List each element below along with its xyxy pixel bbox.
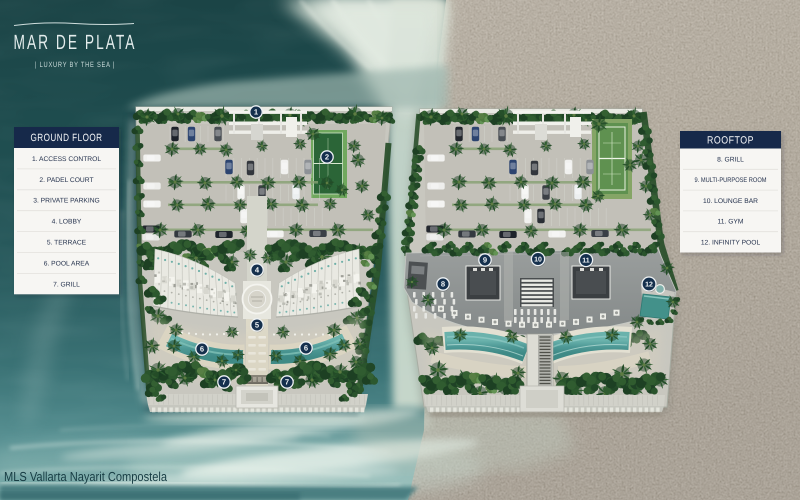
svg-text:1. ACCESS CONTROL: 1. ACCESS CONTROL [32,156,101,163]
svg-text:7: 7 [222,378,226,387]
svg-text:| LUXURY BY THE SEA |: | LUXURY BY THE SEA | [35,60,115,69]
svg-text:MAR DE PLATA: MAR DE PLATA [14,31,137,54]
svg-text:6. POOL AREA: 6. POOL AREA [44,260,90,267]
svg-text:10: 10 [534,257,542,264]
svg-text:7: 7 [285,378,289,387]
svg-text:8: 8 [441,280,445,289]
svg-text:2. PADEL COURT: 2. PADEL COURT [39,177,93,184]
svg-text:7. GRILL: 7. GRILL [53,281,80,288]
svg-text:ROOFTOP: ROOFTOP [707,134,754,146]
svg-text:9: 9 [483,256,487,265]
svg-text:12. INFINITY POOL: 12. INFINITY POOL [701,240,761,247]
svg-text:12: 12 [645,282,653,289]
svg-text:10. LOUNGE BAR: 10. LOUNGE BAR [703,198,758,205]
svg-text:2: 2 [325,153,329,162]
svg-text:3. PRIVATE PARKING: 3. PRIVATE PARKING [33,198,100,205]
svg-text:6: 6 [304,344,308,353]
svg-text:5. TERRACE: 5. TERRACE [47,239,87,246]
svg-text:8. GRILL: 8. GRILL [717,156,744,163]
svg-text:11. GYM: 11. GYM [718,219,744,226]
svg-text:MLS Vallarta Nayarit Compostel: MLS Vallarta Nayarit Compostela [4,469,168,484]
svg-text:11: 11 [582,258,590,265]
svg-text:9. MULTI-PURPOSE ROOM: 9. MULTI-PURPOSE ROOM [695,177,767,184]
svg-text:4. LOBBY: 4. LOBBY [52,219,82,226]
svg-text:6: 6 [200,345,204,354]
svg-text:GROUND FLOOR: GROUND FLOOR [31,132,103,144]
